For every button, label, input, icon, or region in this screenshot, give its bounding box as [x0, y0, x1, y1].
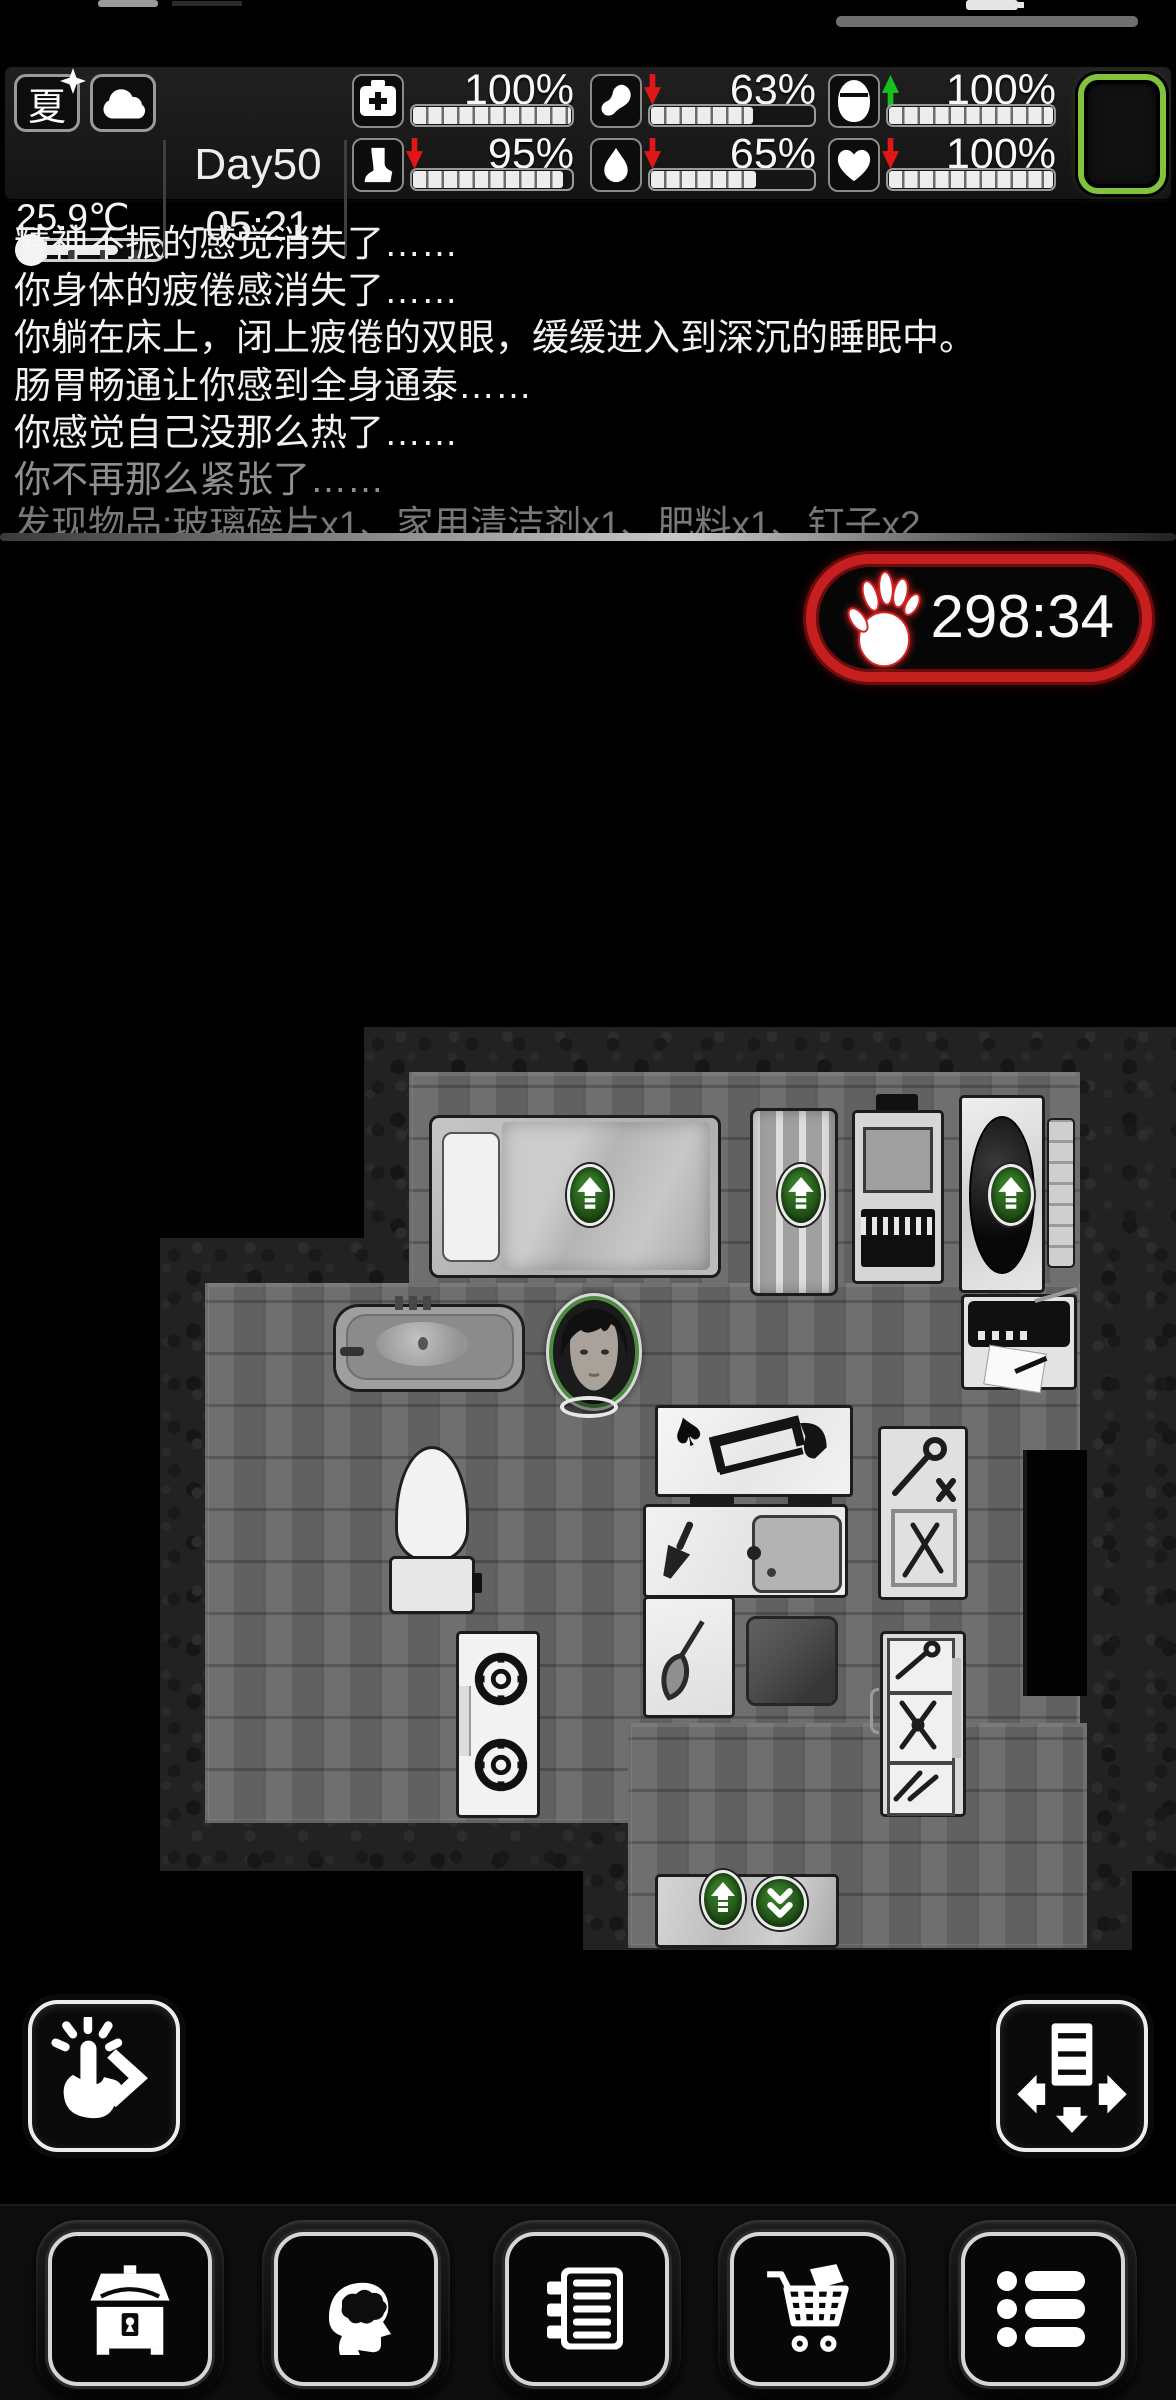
- trend-arrow: [406, 138, 423, 170]
- cabinet-cell: [887, 1762, 955, 1816]
- stat-mood: 100%: [828, 136, 1058, 196]
- journal-button-face: [505, 2232, 669, 2386]
- tub-tick: [409, 1296, 417, 1310]
- double-chevron-down-icon: [765, 1885, 795, 1921]
- water-drop-icon: [590, 138, 642, 192]
- battery-frame[interactable]: [1078, 74, 1166, 194]
- mat-down-badge[interactable]: [753, 1876, 807, 1930]
- shopping-button[interactable]: [718, 2220, 906, 2398]
- cabinet-cell: [887, 1638, 955, 1694]
- counter-top[interactable]: [643, 1504, 848, 1598]
- cart-icon: [761, 2261, 863, 2357]
- status-header: 夏 25.9℃ Day50 -05:21-: [4, 66, 1172, 200]
- shelf-panel[interactable]: [1047, 1118, 1075, 1268]
- log-line-dim: 你不再那么紧张了……: [14, 458, 384, 502]
- sleep-head-icon: [828, 74, 880, 128]
- weather-button[interactable]: [90, 74, 156, 132]
- menu-button[interactable]: [949, 2220, 1137, 2398]
- up-arrow-icon: [577, 1177, 603, 1213]
- stat-health: 100%: [352, 72, 576, 132]
- radio: [968, 1301, 1070, 1347]
- battery-tip: [1018, 2, 1024, 8]
- move-drawers-icon: [1013, 2017, 1131, 2135]
- workbench[interactable]: [852, 1110, 944, 1284]
- list-icon: [993, 2265, 1093, 2353]
- stat-bar: [886, 104, 1056, 127]
- log-line: 你躺在床上，闭上疲倦的双眼，缓缓进入到深沉的睡眠中。: [14, 316, 976, 360]
- sink: [752, 1515, 842, 1593]
- pillow: [442, 1132, 500, 1262]
- burner-icon: [472, 1736, 530, 1794]
- brain-head-icon: [306, 2259, 406, 2359]
- doorway[interactable]: [1023, 1450, 1087, 1696]
- zombie-hand-icon: [838, 568, 934, 672]
- log-line: 肠胃畅通让你感到全身通泰……: [14, 364, 532, 408]
- tools-icons: [885, 1433, 963, 1593]
- infection-timer[interactable]: 298:34: [806, 554, 1152, 682]
- wardrobe-up-badge[interactable]: [778, 1164, 824, 1226]
- day-label: Day50: [170, 140, 346, 190]
- tub-tick: [423, 1296, 431, 1310]
- shopping-button-face: [730, 2232, 894, 2386]
- trend-arrow: [644, 138, 661, 170]
- player-avatar[interactable]: [549, 1296, 639, 1408]
- stat-bar: [886, 168, 1056, 191]
- toilet-tank[interactable]: [389, 1556, 475, 1614]
- survivor-face: [553, 1300, 635, 1404]
- status-sliver-dark: [172, 1, 242, 6]
- log-divider: [0, 533, 1176, 541]
- chest-icon: [78, 2261, 182, 2357]
- character-button-face: [274, 2232, 438, 2386]
- tool-rack[interactable]: [878, 1426, 968, 1600]
- character-button[interactable]: [262, 2220, 450, 2398]
- cabinet-rail: [952, 1658, 961, 1758]
- menu-button-face: [961, 2232, 1125, 2386]
- stat-bar: [410, 168, 574, 191]
- stat-energy: 100%: [828, 72, 1058, 132]
- paper: [983, 1345, 1047, 1394]
- log-line: 你身体的疲倦感消失了……: [14, 269, 458, 313]
- stat-legs: 95%: [352, 136, 576, 196]
- move-furniture-button[interactable]: [996, 2000, 1148, 2152]
- notebook-icon: [537, 2260, 637, 2358]
- notch-bar: [836, 16, 1138, 27]
- leg-icon: [352, 138, 404, 192]
- stove-door: [459, 1686, 471, 1756]
- storage-button[interactable]: [36, 2220, 224, 2398]
- stomach-icon: [590, 74, 642, 128]
- radio-table[interactable]: [961, 1294, 1077, 1390]
- workbench-screen: [863, 1127, 933, 1193]
- battery-sliver-icon: [966, 0, 1018, 10]
- tool-cabinet[interactable]: [880, 1631, 966, 1817]
- game-screen: 夏 25.9℃ Day50 -05:21-: [0, 0, 1176, 2400]
- hacksaw-icon: [699, 1398, 851, 1503]
- bathtub[interactable]: [333, 1304, 525, 1392]
- heart-icon: [828, 138, 880, 192]
- season-label: 夏: [28, 76, 66, 131]
- up-arrow-icon: [711, 1882, 735, 1916]
- mat-up-badge[interactable]: [701, 1870, 745, 1928]
- player-ground-marker: [560, 1396, 618, 1418]
- faucet: [340, 1347, 364, 1356]
- journal-button[interactable]: [493, 2220, 681, 2398]
- storage-button-face: [48, 2232, 212, 2386]
- trend-arrow: [882, 74, 899, 106]
- cabinet-cell: [887, 1692, 955, 1764]
- drain: [418, 1337, 428, 1350]
- trend-arrow: [882, 138, 899, 170]
- stove[interactable]: [456, 1631, 540, 1818]
- cloud-icon: [100, 84, 146, 122]
- log-line: 你感觉自己没那么热了……: [14, 411, 458, 455]
- cabinet-handle: [870, 1688, 879, 1734]
- burner-icon: [472, 1650, 530, 1708]
- counter-side[interactable]: [643, 1596, 735, 1718]
- interact-next-button[interactable]: [28, 2000, 180, 2152]
- stat-bar: [410, 104, 574, 127]
- bottom-toolbar: [0, 2204, 1176, 2400]
- shovel-icon: [648, 1611, 727, 1714]
- stat-hunger: 63%: [590, 72, 818, 132]
- up-arrow-icon: [788, 1177, 814, 1213]
- status-sliver: [98, 0, 158, 7]
- stat-thirst: 65%: [590, 136, 818, 196]
- first-aid-icon: [352, 74, 404, 128]
- up-arrow-icon: [998, 1177, 1024, 1213]
- log-line: 精神不振的感觉消失了……: [14, 222, 458, 266]
- trowel-icon: [642, 1511, 712, 1594]
- workbench-keys: [861, 1209, 935, 1267]
- bed-up-badge[interactable]: [567, 1164, 613, 1226]
- season-button[interactable]: 夏: [14, 74, 80, 132]
- tub-tick: [395, 1296, 403, 1310]
- tap-hand-icon: [45, 2017, 163, 2135]
- floor-rug[interactable]: [746, 1616, 838, 1706]
- tub-up-badge[interactable]: [988, 1164, 1034, 1226]
- toilet-handle: [472, 1573, 482, 1593]
- exit-mat[interactable]: [655, 1874, 839, 1948]
- timer-value: 298:34: [930, 582, 1114, 651]
- stat-bar: [648, 104, 816, 127]
- stat-bar: [648, 168, 816, 191]
- trend-arrow: [644, 74, 661, 106]
- saw-table[interactable]: ♠: [655, 1405, 853, 1497]
- log-line-clipped: 发现物品:玻璃碎片x1、家用清洁剂x1、肥料x1、钉子x2: [0, 503, 1160, 534]
